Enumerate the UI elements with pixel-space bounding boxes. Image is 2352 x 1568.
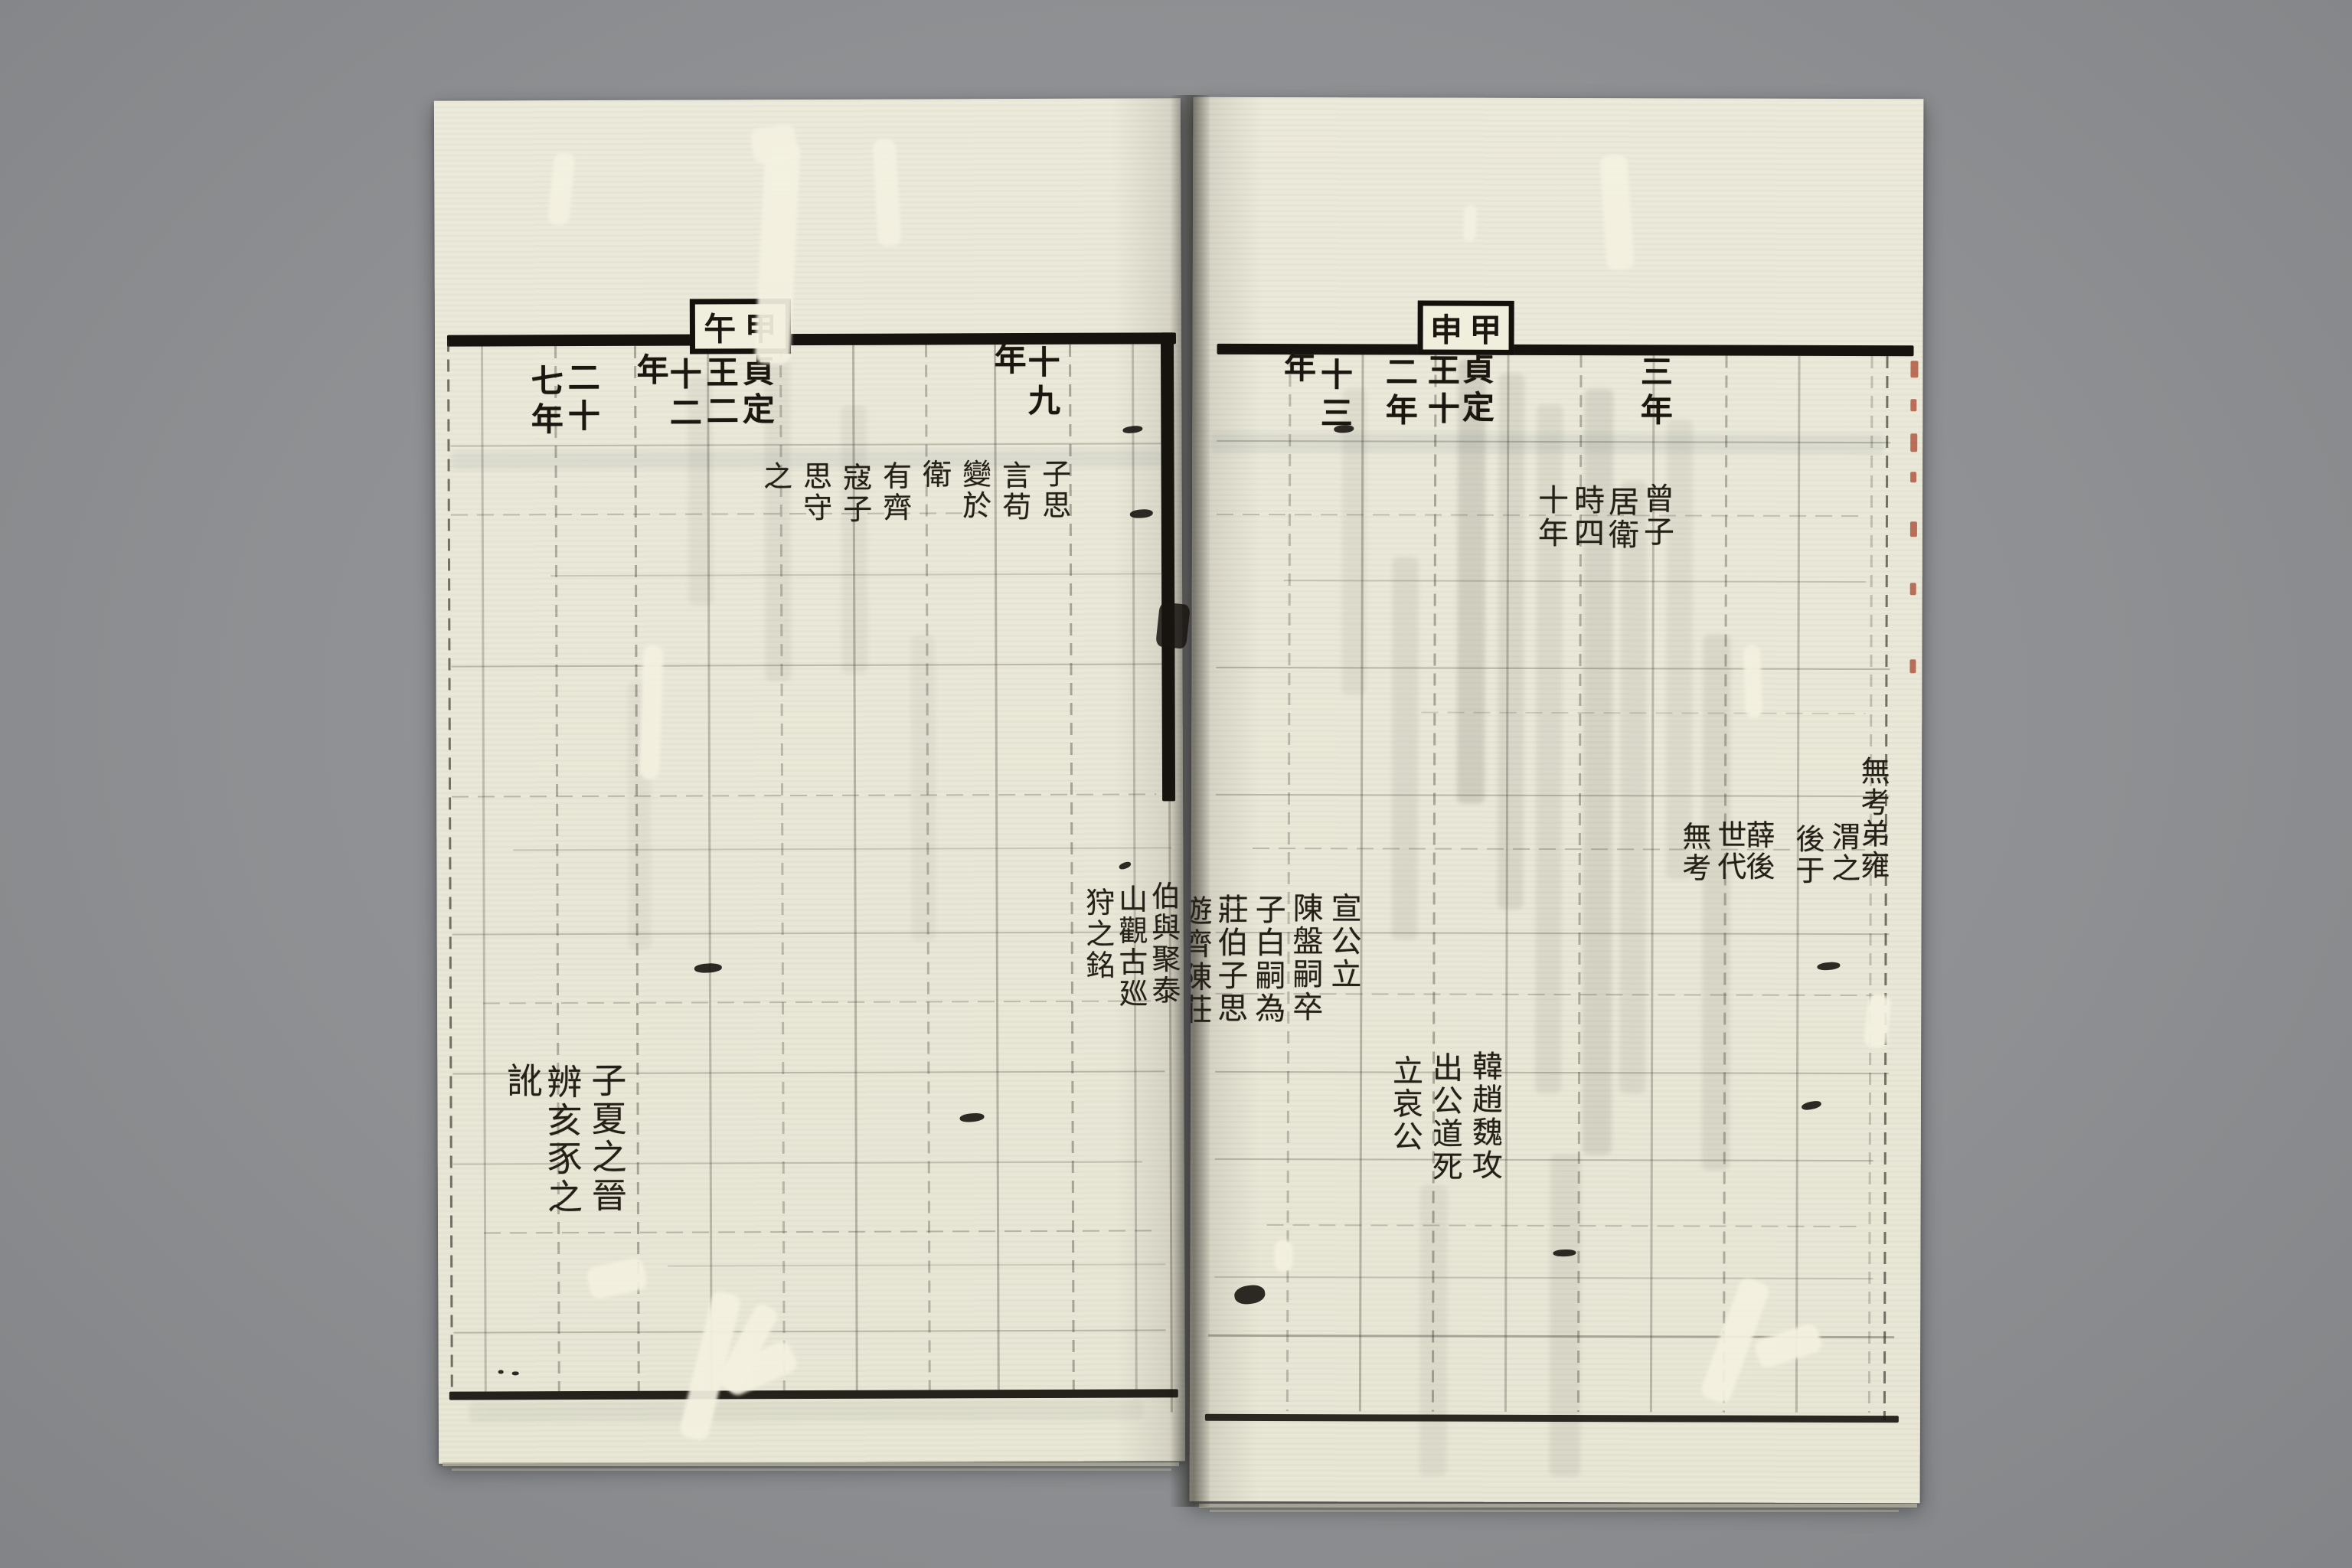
annotation-column: 辨亥豕之 <box>544 1063 580 1217</box>
annotation-column: 曾子 <box>1641 482 1671 548</box>
sheet-edge <box>1210 1510 1899 1512</box>
annotation-column: 變於 <box>959 459 988 521</box>
annotation-column: 言苟 <box>999 460 1028 523</box>
bleed-through-text <box>910 635 936 941</box>
year-header-column: 七年 <box>528 364 560 440</box>
year-header-column: 年 <box>1280 350 1312 388</box>
ink-smudge <box>1801 1099 1821 1111</box>
repair-stain <box>547 152 576 226</box>
repair-stain <box>639 645 663 779</box>
year-header-column: 王十 <box>1424 354 1456 430</box>
grid-line <box>1215 1158 1873 1161</box>
grid-line <box>483 1000 1157 1004</box>
grid-line <box>1284 580 1866 583</box>
repair-stain <box>1463 204 1477 242</box>
annotation-column: 十年 <box>1535 484 1566 550</box>
annotation-column: 世代 <box>1714 820 1743 883</box>
year-header-column: 十二 <box>666 358 698 434</box>
sheet-edge <box>452 1468 1171 1471</box>
grid-line <box>450 443 1162 446</box>
annotation-column: 出公道死 <box>1429 1052 1460 1184</box>
bleed-through-text <box>1392 557 1419 939</box>
grid-line <box>451 663 1163 667</box>
annotation-column: 時四 <box>1571 484 1602 550</box>
grid-line <box>668 1263 1165 1266</box>
year-header-column: 貞定 <box>739 354 771 430</box>
bleed-through-band <box>469 1400 1143 1422</box>
annotation-column: 莊伯子思 <box>1214 893 1245 1025</box>
ink-smudge <box>1817 962 1841 972</box>
annotation-column: 立哀公 <box>1390 1054 1420 1153</box>
annotation-column: 居衛 <box>1606 485 1636 551</box>
year-header-column: 三年 <box>1637 354 1669 431</box>
grid-line <box>454 1329 1166 1333</box>
repair-stain <box>755 141 801 364</box>
repair-stain <box>1864 994 1892 1050</box>
annotation-column: 宣公立 <box>1328 892 1358 991</box>
right-border <box>1883 356 1889 1420</box>
sheet-edge <box>443 1462 1179 1466</box>
cyclical-year-box: 甲 申 <box>1418 301 1514 355</box>
grid-line <box>484 1230 1158 1233</box>
annotation-column: 有齊 <box>880 461 909 524</box>
annotation-column: 山觀古廵 <box>1115 884 1145 1009</box>
red-edge-mark <box>1910 583 1916 595</box>
grid-line <box>554 346 560 1392</box>
annotation-column: 子白嗣為 <box>1252 893 1282 1025</box>
bleed-through-band <box>1210 433 1884 454</box>
annotation-column: 無考 <box>1679 821 1708 884</box>
grid-line <box>1214 1276 1873 1279</box>
annotation-column: 狩之銘 <box>1082 887 1111 982</box>
sheet-edge <box>1199 1504 1917 1508</box>
year-header-column: 二年 <box>1382 354 1414 431</box>
grid-line <box>481 346 487 1392</box>
annotation-column: 韓趙魏攻 <box>1469 1050 1500 1182</box>
annotation-column: 衛 <box>920 459 949 490</box>
red-edge-mark <box>1910 361 1918 377</box>
book-gutter <box>1170 95 1210 1507</box>
top-rule <box>447 332 1176 346</box>
ink-smudge <box>512 1371 519 1375</box>
bottom-rule <box>1205 1414 1899 1423</box>
repair-stain <box>1274 1240 1292 1272</box>
annotation-column: 陳盤嗣卒 <box>1289 892 1320 1024</box>
grid-line <box>1069 345 1075 1390</box>
cyclical-year-char: 午 <box>704 303 736 350</box>
annotation-column: 之 <box>760 461 789 492</box>
red-edge-mark <box>1909 659 1916 673</box>
annotation-column: 子夏之晉 <box>588 1062 624 1215</box>
year-header-column: 貞定 <box>1459 352 1491 429</box>
annotation-column: 渭之 <box>1828 822 1857 884</box>
annotation-column: 思守 <box>800 461 829 524</box>
right-page-leaf: 甲 申 三年 貞定 王十 二年 十三 年 曾子 居衛 時四 十年 無考弟雍 渭之… <box>1190 97 1924 1503</box>
bleed-through-text <box>1550 1155 1581 1476</box>
year-header-column: 年 <box>633 353 665 391</box>
gutter-fold-mark <box>1155 602 1191 649</box>
photo-canvas: { "document": { "type": "woodblock-print… <box>0 0 2352 1568</box>
year-header-column: 年 <box>991 342 1023 381</box>
ink-smudge <box>498 1370 504 1374</box>
annotation-column: 薛後 <box>1743 820 1772 883</box>
cyclical-year-char: 申 <box>1430 305 1462 351</box>
top-rule <box>1217 344 1914 356</box>
red-edge-mark <box>1910 399 1916 411</box>
year-header-column: 十三 <box>1317 358 1349 434</box>
annotation-column: 訛 <box>504 1062 539 1100</box>
left-border <box>447 340 453 1396</box>
repair-stain <box>750 123 799 165</box>
ink-smudge <box>959 1112 985 1123</box>
red-edge-mark <box>1910 521 1917 537</box>
repair-stain <box>872 139 901 247</box>
bleed-through-text <box>1619 481 1647 1093</box>
grid-line <box>1868 356 1873 1413</box>
repair-stain <box>1753 1322 1824 1370</box>
annotation-column: 無考弟雍 <box>1857 756 1886 881</box>
bleed-through-text <box>1498 374 1525 910</box>
grid-line <box>452 931 1165 935</box>
cyclical-year-char: 甲 <box>1469 305 1501 351</box>
repair-stain <box>1599 154 1635 270</box>
year-header-column: 十九 <box>1024 345 1057 422</box>
red-edge-mark <box>1910 472 1916 482</box>
repair-stain <box>1743 645 1762 718</box>
year-header-column: 王二 <box>703 355 735 432</box>
annotation-column: 後于 <box>1792 824 1821 887</box>
ink-smudge <box>694 962 723 973</box>
annotation-column: 寇子 <box>840 462 869 525</box>
left-page-leaf: 甲 午 十九 年 貞定 王二 十二 年 二十 七年 子思 言苟 變於 衛 有齊 … <box>434 98 1185 1463</box>
red-edge-mark <box>1910 433 1917 452</box>
annotation-column: 子思 <box>1039 459 1068 521</box>
year-header-column: 二十 <box>564 361 596 437</box>
